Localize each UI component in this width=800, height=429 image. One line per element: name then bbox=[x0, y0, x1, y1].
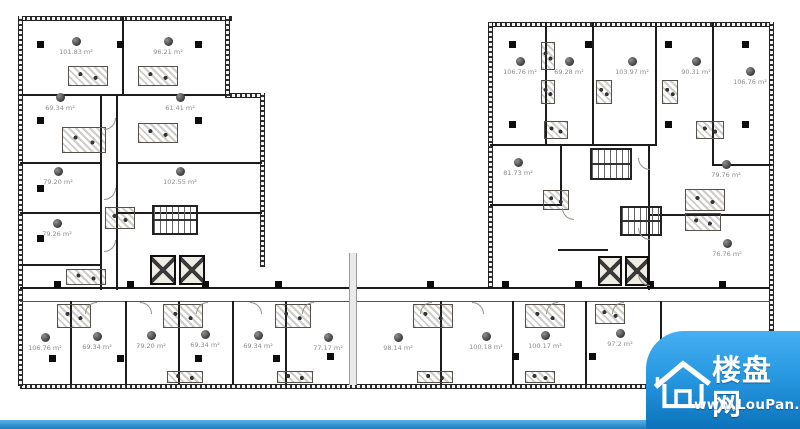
interior-wall bbox=[585, 301, 587, 385]
room-unit: 98.14 m² bbox=[366, 333, 430, 352]
unit-number-circle bbox=[723, 239, 732, 248]
bathroom-pod bbox=[541, 80, 555, 104]
unit-number-circle bbox=[164, 37, 173, 46]
room-area-label: 79.26 m² bbox=[25, 230, 89, 238]
door-swing-arc bbox=[104, 240, 116, 252]
structural-column bbox=[54, 281, 61, 288]
bathroom-pod bbox=[662, 80, 678, 104]
room-area-label: 79.20 m² bbox=[26, 178, 90, 186]
unit-number-circle bbox=[616, 329, 625, 338]
bathroom-pod bbox=[66, 269, 106, 285]
structural-column bbox=[512, 353, 519, 360]
structural-column bbox=[742, 41, 749, 48]
watermark-url: www.LouPan.com bbox=[694, 397, 800, 413]
staircase bbox=[590, 148, 632, 180]
unit-number-circle bbox=[565, 57, 574, 66]
room-area-label: 97.2 m² bbox=[588, 340, 652, 348]
room-unit: 76.76 m² bbox=[695, 239, 759, 258]
room-area-label: 103.97 m² bbox=[600, 68, 664, 76]
unit-number-circle bbox=[394, 333, 403, 342]
structural-column bbox=[37, 185, 44, 192]
bathroom-pod bbox=[544, 121, 568, 139]
unit-number-circle bbox=[93, 332, 102, 341]
structural-column bbox=[327, 353, 334, 360]
bathroom-pod bbox=[685, 189, 725, 211]
elevator-shaft bbox=[150, 255, 176, 285]
unit-number-circle bbox=[147, 331, 156, 340]
room-unit: 77.17 m² bbox=[296, 333, 360, 352]
room-unit: 106.76 m² bbox=[718, 67, 782, 86]
partition-line bbox=[20, 301, 770, 302]
structural-column bbox=[585, 41, 592, 48]
bathroom-pod bbox=[596, 80, 612, 104]
room-unit: 69.34 m² bbox=[28, 93, 92, 112]
room-area-label: 96.21 m² bbox=[136, 48, 200, 56]
unit-number-circle bbox=[746, 67, 755, 76]
structural-column bbox=[719, 281, 726, 288]
exterior-wall bbox=[490, 22, 774, 27]
room-unit: 100.17 m² bbox=[513, 331, 577, 350]
interior-wall bbox=[20, 264, 102, 266]
unit-number-circle bbox=[482, 332, 491, 341]
staircase bbox=[152, 205, 198, 235]
interior-wall bbox=[20, 212, 102, 214]
room-area-label: 61.41 m² bbox=[148, 104, 212, 112]
exterior-wall bbox=[225, 16, 230, 96]
floor-plan-image: 101.83 m²96.21 m²69.34 m²61.41 m²79.20 m… bbox=[0, 0, 800, 429]
room-unit: 79.20 m² bbox=[26, 167, 90, 186]
loupan-watermark: 楼盘网 www.LouPan.com bbox=[646, 331, 800, 429]
exterior-wall bbox=[20, 16, 232, 21]
door-swing-arc bbox=[250, 302, 262, 314]
elevator-shaft bbox=[179, 255, 205, 285]
room-area-label: 101.83 m² bbox=[44, 48, 108, 56]
structural-column bbox=[509, 41, 516, 48]
room-area-label: 100.18 m² bbox=[454, 343, 518, 351]
room-unit: 61.41 m² bbox=[148, 93, 212, 112]
structural-column bbox=[742, 121, 749, 128]
unit-number-circle bbox=[628, 57, 637, 66]
structural-column bbox=[575, 281, 582, 288]
unit-number-circle bbox=[56, 93, 65, 102]
bathroom-pod bbox=[138, 123, 178, 143]
interior-wall bbox=[116, 162, 262, 164]
room-area-label: 102.55 m² bbox=[148, 178, 212, 186]
door-swing-arc bbox=[104, 188, 116, 200]
room-area-label: 100.17 m² bbox=[513, 342, 577, 350]
room-area-label: 76.76 m² bbox=[695, 250, 759, 258]
room-unit: 101.83 m² bbox=[44, 37, 108, 56]
bathroom-pod bbox=[105, 207, 135, 229]
room-unit: 79.76 m² bbox=[694, 160, 758, 179]
exterior-wall bbox=[18, 16, 23, 386]
room-unit: 97.2 m² bbox=[588, 329, 652, 348]
bathroom-pod bbox=[138, 66, 178, 86]
structural-column bbox=[502, 281, 509, 288]
structural-column bbox=[117, 41, 124, 48]
interior-wall bbox=[712, 22, 714, 166]
door-swing-arc bbox=[104, 118, 116, 130]
unit-number-circle bbox=[516, 57, 525, 66]
structural-column bbox=[665, 41, 672, 48]
bathroom-pod bbox=[167, 371, 203, 383]
bathroom-pod bbox=[277, 371, 313, 383]
bathroom-pod bbox=[417, 371, 453, 383]
interior-wall bbox=[122, 16, 124, 96]
structural-column bbox=[127, 281, 134, 288]
interior-wall bbox=[100, 94, 102, 290]
door-swing-arc bbox=[638, 158, 650, 170]
unit-number-circle bbox=[324, 333, 333, 342]
room-unit: 100.18 m² bbox=[454, 332, 518, 351]
room-unit: 103.97 m² bbox=[600, 57, 664, 76]
structural-column bbox=[665, 121, 672, 128]
unit-number-circle bbox=[541, 331, 550, 340]
room-area-label: 106.76 m² bbox=[718, 78, 782, 86]
structural-column bbox=[49, 355, 56, 362]
door-swing-arc bbox=[638, 228, 650, 240]
structural-column bbox=[589, 353, 596, 360]
interior-wall bbox=[655, 22, 657, 146]
room-unit: 102.55 m² bbox=[148, 167, 212, 186]
interior-wall bbox=[490, 144, 656, 146]
expansion-joint bbox=[349, 253, 357, 385]
interior-wall bbox=[20, 162, 102, 164]
structural-column bbox=[37, 41, 44, 48]
bathroom-pod bbox=[62, 127, 106, 153]
unit-number-circle bbox=[54, 167, 63, 176]
interior-wall bbox=[558, 249, 608, 251]
door-swing-arc bbox=[140, 302, 152, 314]
bathroom-pod bbox=[525, 371, 555, 383]
room-area-label: 77.17 m² bbox=[296, 344, 360, 352]
room-unit: 96.21 m² bbox=[136, 37, 200, 56]
door-swing-arc bbox=[562, 208, 574, 220]
interior-wall bbox=[116, 94, 118, 290]
door-swing-arc bbox=[472, 302, 484, 314]
room-area-label: 81.73 m² bbox=[486, 169, 550, 177]
unit-number-circle bbox=[176, 93, 185, 102]
bathroom-pod bbox=[525, 304, 565, 328]
elevator-shaft bbox=[598, 256, 622, 286]
structural-column bbox=[195, 117, 202, 124]
structural-column bbox=[37, 117, 44, 124]
room-area-label: 69.34 m² bbox=[226, 342, 290, 350]
room-area-label: 69.28 m² bbox=[537, 68, 601, 76]
unit-number-circle bbox=[692, 57, 701, 66]
room-area-label: 98.14 m² bbox=[366, 344, 430, 352]
unit-number-circle bbox=[254, 331, 263, 340]
structural-column bbox=[275, 281, 282, 288]
bathroom-pod bbox=[413, 304, 453, 328]
room-unit: 81.73 m² bbox=[486, 158, 550, 177]
interior-wall bbox=[592, 22, 594, 146]
bathroom-pod bbox=[543, 190, 569, 210]
bathroom-pod bbox=[68, 66, 108, 86]
unit-number-circle bbox=[41, 333, 50, 342]
room-unit: 69.34 m² bbox=[226, 331, 290, 350]
structural-column bbox=[273, 355, 280, 362]
unit-number-circle bbox=[72, 37, 81, 46]
bathroom-pod bbox=[696, 121, 724, 139]
structural-column bbox=[427, 281, 434, 288]
structural-column bbox=[195, 355, 202, 362]
unit-number-circle bbox=[514, 158, 523, 167]
unit-number-circle bbox=[176, 167, 185, 176]
bathroom-pod bbox=[685, 213, 721, 231]
unit-number-circle bbox=[53, 219, 62, 228]
exterior-wall bbox=[225, 93, 265, 98]
structural-column bbox=[117, 355, 124, 362]
unit-number-circle bbox=[201, 330, 210, 339]
room-unit: 79.26 m² bbox=[25, 219, 89, 238]
structural-column bbox=[509, 121, 516, 128]
room-area-label: 79.76 m² bbox=[694, 171, 758, 179]
room-unit: 69.28 m² bbox=[537, 57, 601, 76]
unit-number-circle bbox=[722, 160, 731, 169]
exterior-wall bbox=[260, 93, 265, 267]
room-area-label: 69.34 m² bbox=[28, 104, 92, 112]
